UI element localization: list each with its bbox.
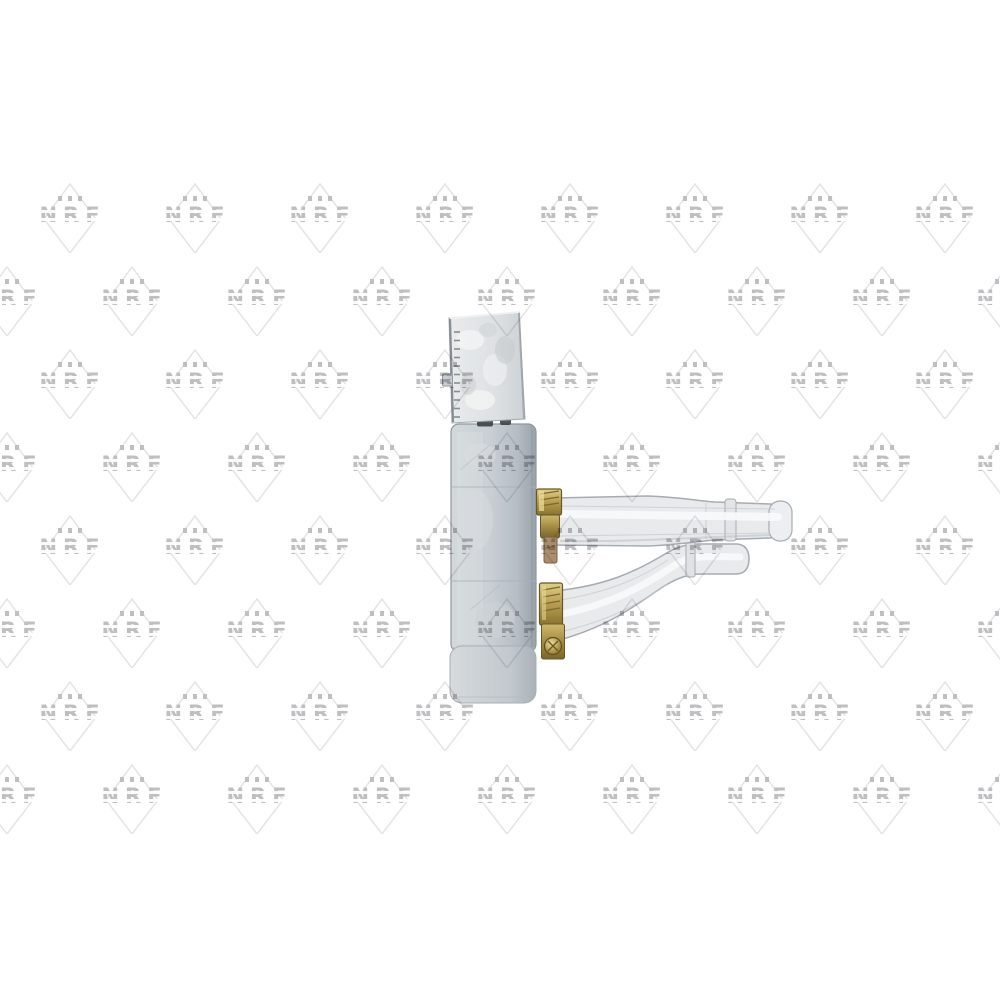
nrf-dots-icon — [830, 777, 934, 782]
nrf-diamond-icon — [143, 177, 247, 253]
core-body — [451, 417, 536, 652]
nrf-dots-icon — [205, 445, 309, 450]
nrf-watermark-text: NRF — [580, 784, 684, 808]
nrf-watermark: NRF — [268, 675, 372, 751]
nrf-watermark: NRF — [143, 675, 247, 751]
nrf-diamond-icon — [18, 675, 122, 751]
nrf-watermark: NRF — [18, 675, 122, 751]
nrf-watermark-text: NRF — [205, 618, 309, 642]
nrf-diamond-icon — [205, 260, 309, 336]
nrf-diamond-icon — [330, 260, 434, 336]
nrf-dots-icon — [18, 362, 122, 367]
nrf-watermark-text: NRF — [893, 369, 997, 393]
nrf-watermark: NRF — [205, 758, 309, 834]
nrf-dots-icon — [955, 445, 1000, 450]
nrf-diamond-icon — [643, 177, 747, 253]
nrf-diamond-icon — [830, 758, 934, 834]
nrf-dots-icon — [0, 279, 59, 284]
nrf-dots-icon — [580, 279, 684, 284]
nrf-dots-icon — [330, 279, 434, 284]
nrf-watermark-text: NRF — [893, 203, 997, 227]
nrf-diamond-icon — [330, 426, 434, 502]
nrf-watermark-text: NRF — [705, 784, 809, 808]
nrf-diamond-icon — [768, 177, 872, 253]
nrf-watermark-text: NRF — [268, 369, 372, 393]
top-tank — [443, 312, 526, 423]
nrf-watermark: NRF — [268, 343, 372, 419]
nrf-dots-icon — [330, 777, 434, 782]
nrf-dots-icon — [205, 611, 309, 616]
nrf-diamond-icon — [330, 758, 434, 834]
nrf-watermark: NRF — [80, 758, 184, 834]
nrf-dots-icon — [18, 196, 122, 201]
nrf-dots-icon — [143, 694, 247, 699]
nrf-diamond-icon — [205, 758, 309, 834]
nrf-watermark: NRF — [955, 758, 1000, 834]
nrf-watermark: NRF — [393, 177, 497, 253]
nrf-diamond-icon — [830, 592, 934, 668]
nrf-dots-icon — [893, 528, 997, 533]
nrf-watermark-text: NRF — [393, 203, 497, 227]
hose-clamp-lower — [540, 583, 565, 659]
hose-clamp-upper — [537, 489, 562, 563]
nrf-diamond-icon — [893, 675, 997, 751]
nrf-dots-icon — [143, 362, 247, 367]
nrf-diamond-icon — [80, 758, 184, 834]
nrf-watermark: NRF — [330, 260, 434, 336]
nrf-watermark-text: NRF — [955, 618, 1000, 642]
nrf-watermark: NRF — [205, 426, 309, 502]
nrf-dots-icon — [80, 777, 184, 782]
outlet-pipe-lower — [554, 541, 749, 641]
nrf-watermark: NRF — [0, 260, 59, 336]
nrf-diamond-icon — [268, 675, 372, 751]
nrf-dots-icon — [330, 611, 434, 616]
nrf-diamond-icon — [268, 177, 372, 253]
nrf-diamond-icon — [955, 758, 1000, 834]
bottom-tank — [450, 646, 536, 703]
nrf-dots-icon — [893, 694, 997, 699]
nrf-watermark: NRF — [80, 592, 184, 668]
nrf-watermark: NRF — [893, 343, 997, 419]
nrf-diamond-icon — [955, 426, 1000, 502]
nrf-watermark: NRF — [705, 758, 809, 834]
nrf-diamond-icon — [80, 426, 184, 502]
nrf-diamond-icon — [705, 758, 809, 834]
nrf-watermark-text: NRF — [143, 535, 247, 559]
pipe-lower-flange-ring — [686, 541, 695, 577]
nrf-watermark: NRF — [455, 758, 559, 834]
nrf-watermark-text: NRF — [18, 369, 122, 393]
nrf-watermark: NRF — [18, 177, 122, 253]
nrf-dots-icon — [80, 279, 184, 284]
nrf-watermark-text: NRF — [330, 452, 434, 476]
nrf-dots-icon — [955, 279, 1000, 284]
nrf-diamond-icon — [80, 260, 184, 336]
nrf-dots-icon — [643, 196, 747, 201]
nrf-diamond-icon — [205, 592, 309, 668]
nrf-watermark: NRF — [955, 592, 1000, 668]
nrf-watermark-text: NRF — [830, 784, 934, 808]
nrf-watermark-text: NRF — [80, 452, 184, 476]
nrf-diamond-icon — [955, 592, 1000, 668]
nrf-dots-icon — [455, 279, 559, 284]
nrf-diamond-icon — [955, 260, 1000, 336]
nrf-watermark: NRF — [18, 509, 122, 585]
nrf-dots-icon — [393, 196, 497, 201]
nrf-dots-icon — [518, 196, 622, 201]
nrf-dots-icon — [18, 694, 122, 699]
nrf-dots-icon — [893, 362, 997, 367]
nrf-watermark: NRF — [80, 260, 184, 336]
nrf-diamond-icon — [18, 509, 122, 585]
nrf-watermark-text: NRF — [0, 286, 59, 310]
nrf-watermark-text: NRF — [330, 286, 434, 310]
nrf-watermark-text: NRF — [518, 203, 622, 227]
nrf-dots-icon — [18, 528, 122, 533]
nrf-watermark-text: NRF — [830, 286, 934, 310]
nrf-watermark-text: NRF — [893, 701, 997, 725]
outlet-pipe-upper — [554, 496, 792, 546]
nrf-diamond-icon — [18, 177, 122, 253]
nrf-dots-icon — [268, 362, 372, 367]
nrf-watermark: NRF — [893, 509, 997, 585]
nrf-dots-icon — [955, 777, 1000, 782]
nrf-watermark: NRF — [518, 177, 622, 253]
nrf-watermark-text: NRF — [330, 618, 434, 642]
nrf-diamond-icon — [0, 426, 59, 502]
nrf-watermark-text: NRF — [955, 784, 1000, 808]
nrf-diamond-icon — [893, 177, 997, 253]
nrf-dots-icon — [143, 528, 247, 533]
nrf-dots-icon — [268, 694, 372, 699]
nrf-dots-icon — [80, 445, 184, 450]
nrf-watermark-text: NRF — [0, 452, 59, 476]
nrf-watermark: NRF — [205, 260, 309, 336]
nrf-watermark: NRF — [0, 758, 59, 834]
nrf-dots-icon — [143, 196, 247, 201]
nrf-diamond-icon — [143, 675, 247, 751]
nrf-diamond-icon — [830, 426, 934, 502]
nrf-watermark: NRF — [830, 592, 934, 668]
nrf-watermark: NRF — [268, 177, 372, 253]
nrf-dots-icon — [893, 196, 997, 201]
nrf-watermark: NRF — [80, 426, 184, 502]
nrf-watermark-text: NRF — [80, 618, 184, 642]
nrf-watermark: NRF — [330, 592, 434, 668]
nrf-watermark-text: NRF — [830, 452, 934, 476]
nrf-watermark: NRF — [0, 592, 59, 668]
nrf-watermark-text: NRF — [0, 784, 59, 808]
nrf-watermark-text: NRF — [80, 784, 184, 808]
nrf-watermark: NRF — [268, 509, 372, 585]
nrf-watermark-text: NRF — [18, 535, 122, 559]
nrf-watermark-text: NRF — [205, 286, 309, 310]
product-photo-canvas: NRFNRFNRFNRFNRFNRFNRFNRFNRFNRFNRFNRFNRFN… — [0, 0, 1000, 1000]
nrf-watermark-text: NRF — [955, 452, 1000, 476]
nrf-dots-icon — [830, 611, 934, 616]
nrf-dots-icon — [80, 611, 184, 616]
nrf-watermark: NRF — [580, 758, 684, 834]
nrf-diamond-icon — [18, 343, 122, 419]
nrf-diamond-icon — [0, 592, 59, 668]
nrf-watermark: NRF — [143, 509, 247, 585]
nrf-watermark-text: NRF — [18, 203, 122, 227]
nrf-dots-icon — [205, 777, 309, 782]
nrf-watermark: NRF — [330, 758, 434, 834]
nrf-dots-icon — [330, 445, 434, 450]
nrf-dots-icon — [455, 777, 559, 782]
nrf-diamond-icon — [0, 758, 59, 834]
nrf-diamond-icon — [830, 260, 934, 336]
nrf-diamond-icon — [268, 509, 372, 585]
nrf-watermark: NRF — [643, 177, 747, 253]
nrf-watermark: NRF — [955, 260, 1000, 336]
nrf-dots-icon — [705, 777, 809, 782]
tank-side-tab — [443, 374, 453, 386]
nrf-watermark-text: NRF — [643, 203, 747, 227]
nrf-watermark: NRF — [830, 260, 934, 336]
nrf-watermark-text: NRF — [80, 286, 184, 310]
nrf-watermark-text: NRF — [455, 784, 559, 808]
nrf-watermark-text: NRF — [830, 618, 934, 642]
nrf-watermark-text: NRF — [143, 203, 247, 227]
nrf-watermark-text: NRF — [330, 784, 434, 808]
nrf-watermark-text: NRF — [268, 701, 372, 725]
nrf-diamond-icon — [518, 177, 622, 253]
nrf-watermark-text: NRF — [768, 203, 872, 227]
nrf-dots-icon — [0, 445, 59, 450]
nrf-diamond-icon — [393, 177, 497, 253]
nrf-watermark: NRF — [768, 177, 872, 253]
nrf-watermark-text: NRF — [205, 784, 309, 808]
nrf-diamond-icon — [143, 343, 247, 419]
nrf-watermark: NRF — [893, 675, 997, 751]
nrf-diamond-icon — [80, 592, 184, 668]
nrf-diamond-icon — [893, 343, 997, 419]
nrf-watermark: NRF — [143, 343, 247, 419]
nrf-diamond-icon — [143, 509, 247, 585]
nrf-watermark-text: NRF — [18, 701, 122, 725]
nrf-watermark: NRF — [330, 426, 434, 502]
nrf-dots-icon — [955, 611, 1000, 616]
nrf-watermark: NRF — [143, 177, 247, 253]
nrf-watermark-text: NRF — [0, 618, 59, 642]
nrf-watermark: NRF — [893, 177, 997, 253]
nrf-dots-icon — [705, 279, 809, 284]
nrf-diamond-icon — [455, 758, 559, 834]
nrf-dots-icon — [830, 279, 934, 284]
nrf-watermark: NRF — [0, 426, 59, 502]
nrf-watermark-text: NRF — [143, 369, 247, 393]
nrf-watermark-text: NRF — [205, 452, 309, 476]
nrf-diamond-icon — [0, 260, 59, 336]
heater-core-product — [430, 300, 810, 720]
nrf-watermark: NRF — [18, 343, 122, 419]
nrf-dots-icon — [268, 528, 372, 533]
nrf-dots-icon — [205, 279, 309, 284]
nrf-diamond-icon — [205, 426, 309, 502]
pipe-upper-barb-tip — [769, 501, 792, 541]
nrf-watermark-text: NRF — [268, 535, 372, 559]
nrf-dots-icon — [0, 777, 59, 782]
nrf-watermark: NRF — [955, 426, 1000, 502]
nrf-watermark-text: NRF — [268, 203, 372, 227]
nrf-watermark: NRF — [830, 426, 934, 502]
nrf-diamond-icon — [580, 758, 684, 834]
nrf-watermark: NRF — [205, 592, 309, 668]
nrf-watermark-text: NRF — [143, 701, 247, 725]
nrf-diamond-icon — [268, 343, 372, 419]
nrf-dots-icon — [580, 777, 684, 782]
nrf-diamond-icon — [893, 509, 997, 585]
nrf-dots-icon — [768, 196, 872, 201]
nrf-watermark-text: NRF — [955, 286, 1000, 310]
nrf-dots-icon — [268, 196, 372, 201]
nrf-watermark-text: NRF — [893, 535, 997, 559]
nrf-watermark: NRF — [830, 758, 934, 834]
nrf-dots-icon — [0, 611, 59, 616]
nrf-dots-icon — [830, 445, 934, 450]
nrf-diamond-icon — [330, 592, 434, 668]
